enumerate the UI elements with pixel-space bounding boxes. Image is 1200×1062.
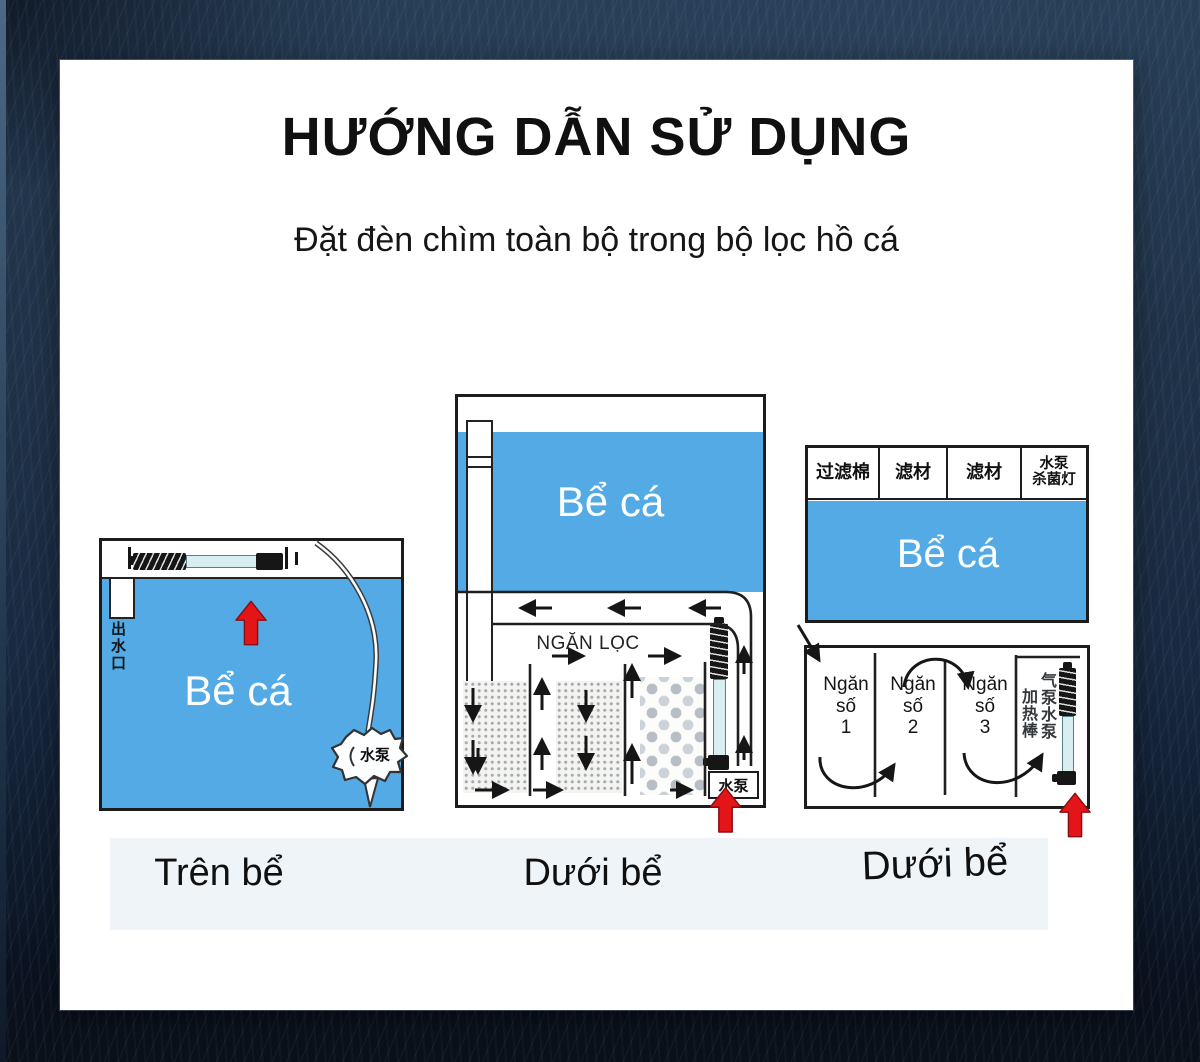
air-water-pump-label: 气泵水泵: [1038, 672, 1054, 776]
uv-lamp-ballast: [1059, 668, 1076, 716]
diagram-sump-compartments-box: Ngăn số 1 Ngăn số 2 Ngăn số 3 加热棒 气泵水泵: [804, 645, 1090, 809]
compartment-3-label: Ngăn số 3: [957, 674, 1013, 739]
compartment-1-label: Ngăn số 1: [818, 674, 874, 739]
pipe-joint: [466, 456, 493, 468]
water-outlet-label: 出水口: [110, 621, 125, 699]
left-edge-highlight: [0, 0, 6, 1062]
filter-cell-media: 滤材: [880, 448, 948, 498]
uv-lamp-nub: [703, 758, 709, 766]
label-line: số: [818, 696, 874, 718]
label-line: Ngăn: [957, 674, 1013, 696]
page-subtitle: Đặt đèn chìm toàn bộ trong bộ lọc hồ cá: [60, 221, 1133, 260]
pump-label: 水泵: [351, 744, 399, 765]
tank-water-label: Bể cá: [138, 667, 338, 715]
tank-water-label: Bể cá: [848, 532, 1048, 577]
diagram-sump-compartments-tank: 过滤棉 滤材 滤材 水泵 杀菌灯 Bể cá: [805, 445, 1089, 623]
filter-header-row: 过滤棉 滤材 滤材 水泵 杀菌灯: [808, 448, 1086, 500]
page-title: HƯỚNG DẪN SỬ DỤNG: [60, 106, 1133, 168]
uv-lamp-cap: [256, 553, 283, 570]
filter-cell-cotton: 过滤棉: [808, 448, 880, 498]
filter-media-block: [556, 681, 622, 793]
product-instruction-image: HƯỚNG DẪN SỬ DỤNG Đặt đèn chìm toàn bộ t…: [0, 0, 1200, 1062]
diagram-on-tank: 出水口 Bể cá 水泵: [99, 538, 404, 811]
label-line: 1: [818, 717, 874, 739]
uv-lamp-tube: [1062, 716, 1074, 772]
label-line: Ngăn: [818, 674, 874, 696]
filter-cell-label: 杀菌灯: [1032, 473, 1076, 489]
filter-cell-label: 滤材: [895, 463, 931, 483]
filter-compartment-label: NGĂN LỌC: [498, 633, 678, 655]
filter-cell-pump-uv: 水泵 杀菌灯: [1022, 448, 1086, 498]
label-line: 2: [885, 717, 941, 739]
label-line: số: [957, 696, 1013, 718]
bio-ball-block: [640, 677, 704, 795]
caption-under-tank-1: Dưới bể: [513, 852, 673, 895]
uv-lamp-cap: [1057, 771, 1076, 785]
water-outlet-pipe: [109, 577, 135, 619]
uv-lamp-tube: [713, 679, 726, 757]
hose-bracket: [295, 552, 298, 565]
diagram-sump-flow: Bể cá NGĂN LỌC 水泵: [455, 394, 766, 808]
label-line: số: [885, 696, 941, 718]
caption-on-tank: Trên bể: [139, 852, 299, 895]
tank-water-label: Bể cá: [518, 478, 703, 526]
uv-lamp-ballast: [710, 623, 728, 679]
uv-lamp-nub: [1052, 774, 1058, 782]
label-line: Ngăn: [885, 674, 941, 696]
label-line: 3: [957, 717, 1013, 739]
uv-lamp-tube: [186, 555, 258, 568]
filter-media-block: [463, 681, 527, 793]
red-up-arrow: [1059, 791, 1091, 839]
uv-lamp-ballast: [133, 553, 186, 570]
uv-lamp-cap: [708, 755, 729, 770]
red-up-arrow: [235, 599, 267, 647]
filter-cell-label: 过滤棉: [816, 463, 870, 483]
filter-cell-label: 滤材: [966, 463, 1002, 483]
compartment-2-label: Ngăn số 2: [885, 674, 941, 739]
red-up-arrow: [709, 787, 742, 833]
lamp-bracket: [285, 547, 288, 569]
instruction-card: HƯỚNG DẪN SỬ DỤNG Đặt đèn chìm toàn bộ t…: [60, 60, 1133, 1010]
filter-cell-media: 滤材: [948, 448, 1022, 498]
filter-cell-label: 水泵: [1040, 457, 1069, 473]
heater-label: 加热棒: [1019, 688, 1035, 768]
caption-under-tank-2: Dưới bể: [849, 839, 1020, 890]
